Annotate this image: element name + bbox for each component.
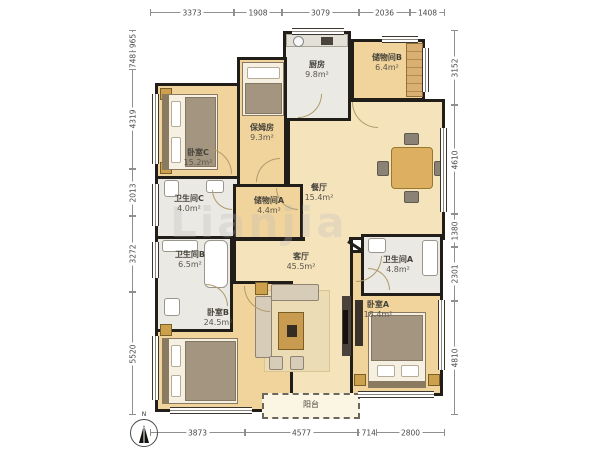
- dimension-value: 4610: [450, 148, 459, 171]
- room-name: 卧室B: [192, 308, 244, 318]
- dimension-value: 3873: [186, 428, 209, 437]
- room-name: 卧室A: [352, 300, 404, 310]
- dimension-top-3: 3079: [282, 7, 359, 18]
- dimension-value: 3079: [309, 8, 332, 17]
- pillow-icon: [247, 67, 280, 79]
- room-label-bathroom-c: 卫生间C 4.0m²: [163, 194, 215, 214]
- room-name: 客厅: [276, 252, 326, 262]
- room-name: 卫生间C: [163, 194, 215, 204]
- room-name: 卧室C: [172, 148, 224, 158]
- window-icon: [438, 300, 445, 370]
- bed-headboard: [163, 95, 169, 169]
- room-area: 45.5m²: [276, 262, 326, 272]
- room-name: 储物间B: [361, 53, 413, 63]
- dining-table-icon: [391, 147, 433, 189]
- room-area: 18.4m²: [352, 310, 404, 320]
- dimension-value: 5520: [128, 342, 137, 365]
- chair-icon: [377, 161, 389, 176]
- room-label-nanny: 保姆房 9.3m²: [239, 123, 285, 143]
- blanket: [245, 83, 282, 114]
- dimension-bottom-4: 2800: [376, 427, 445, 438]
- dimension-left-3: 4319: [127, 69, 138, 169]
- room-label-living: 客厅 45.5m²: [276, 252, 326, 272]
- toilet-icon: [368, 238, 386, 253]
- dimension-right-4: 2301: [449, 247, 460, 301]
- dimension-value: 3373: [180, 8, 203, 17]
- window-icon: [152, 184, 159, 226]
- pillow-icon: [171, 375, 181, 397]
- dimension-top-4: 2036: [359, 7, 410, 18]
- pillow-icon: [171, 345, 181, 367]
- floor-plan: 卧室C 15.2m² 保姆房 9.3m² 厨房 9.8m² 储物间B 6.4m²…: [0, 0, 600, 450]
- dimension-value: 2800: [399, 428, 422, 437]
- window-icon: [440, 128, 447, 212]
- dimension-value: 4319: [128, 107, 137, 130]
- dimension-left-6: 5520: [127, 292, 138, 415]
- room-name: 储物间A: [244, 196, 294, 206]
- dimension-value: 2013: [128, 181, 137, 204]
- toilet-icon: [164, 298, 180, 316]
- tv-icon: [343, 310, 348, 344]
- window-icon: [382, 36, 418, 43]
- room-label-balcony: 阳台: [286, 400, 336, 410]
- window-icon: [152, 336, 159, 400]
- kitchen-counter-icon: [286, 34, 348, 47]
- bed-headboard: [163, 339, 169, 403]
- room-area: 15.2m²: [172, 158, 224, 168]
- room-area: 4.4m²: [244, 206, 294, 216]
- pillow-icon: [171, 101, 181, 127]
- dimension-left-2: 748: [127, 52, 138, 69]
- room-name: 餐厅: [294, 183, 344, 193]
- dimension-top-2: 1908: [234, 7, 282, 18]
- dimension-value: 4810: [450, 346, 459, 369]
- room-area: 24.5m²: [192, 318, 244, 328]
- chair-icon: [404, 133, 419, 145]
- table-decor: [287, 325, 297, 337]
- dimension-right-5: 4810: [449, 301, 460, 415]
- window-icon: [152, 242, 159, 278]
- compass-north-label: N: [142, 411, 147, 418]
- dimension-right-2: 4610: [449, 105, 460, 214]
- window-icon: [152, 94, 159, 164]
- nightstand-icon: [428, 374, 440, 386]
- dimension-top-1: 3373: [150, 7, 234, 18]
- room-area: 4.0m²: [163, 204, 215, 214]
- dimension-value: 748: [128, 51, 137, 69]
- window-icon: [358, 391, 434, 398]
- dimension-left-4: 2013: [127, 169, 138, 216]
- room-label-bedroom-b: 卧室B 24.5m²: [192, 308, 244, 328]
- room-name: 卫生间B: [164, 250, 216, 260]
- dimension-value: 1408: [416, 8, 439, 17]
- nightstand-icon: [160, 324, 172, 336]
- dimension-bottom-1: 3873: [150, 427, 245, 438]
- dimension-bottom-3: 714: [358, 427, 376, 438]
- dimension-value: 2301: [450, 262, 459, 285]
- pillow-icon: [401, 365, 419, 377]
- stool-icon: [269, 356, 283, 370]
- room-label-bathroom-a: 卫生间A 4.8m²: [372, 255, 424, 275]
- dimension-left-1: 965: [127, 30, 138, 52]
- room-label-bedroom-a: 卧室A 18.4m²: [352, 300, 404, 320]
- sofa-icon: [271, 284, 319, 301]
- room-label-bathroom-b: 卫生间B 6.5m²: [164, 250, 216, 270]
- dimension-value: 3152: [450, 56, 459, 79]
- blanket: [371, 315, 423, 361]
- dimension-top-5: 1408: [410, 7, 445, 18]
- north-arrow-slit: [144, 427, 145, 443]
- room-area: 6.5m²: [164, 260, 216, 270]
- stove-icon: [321, 37, 333, 45]
- dimension-right-1: 3152: [449, 30, 460, 105]
- window-icon: [292, 28, 344, 35]
- sink-icon: [293, 36, 304, 47]
- room-area: 9.3m²: [239, 133, 285, 143]
- window-icon: [422, 48, 429, 92]
- room-area: 15.4m²: [294, 193, 344, 203]
- pillow-icon: [377, 365, 395, 377]
- room-label-kitchen: 厨房 9.8m²: [293, 60, 341, 80]
- room-name: 卫生间A: [372, 255, 424, 265]
- dimension-value: 965: [128, 32, 137, 50]
- dimension-left-5: 3272: [127, 216, 138, 292]
- dimension-value: 2036: [373, 8, 396, 17]
- dimension-value: 3272: [128, 242, 137, 265]
- sink-icon: [422, 240, 438, 276]
- bed-icon: [242, 62, 284, 116]
- bed-icon: [368, 312, 426, 388]
- blanket: [185, 341, 236, 401]
- room-area: 6.4m²: [361, 63, 413, 73]
- room-name: 保姆房: [239, 123, 285, 133]
- bed-icon: [162, 338, 238, 404]
- nightstand-icon: [354, 374, 366, 386]
- room-label-bedroom-c: 卧室C 15.2m²: [172, 148, 224, 168]
- bed-headboard: [369, 381, 425, 387]
- room-name: 阳台: [286, 400, 336, 410]
- room-label-storage-a: 储物间A 4.4m²: [244, 196, 294, 216]
- dimension-bottom-2: 4577: [245, 427, 358, 438]
- room-area: 4.8m²: [372, 265, 424, 275]
- dimension-value: 4577: [290, 428, 313, 437]
- room-name: 厨房: [293, 60, 341, 70]
- dimension-right-3: 1380: [449, 214, 460, 247]
- tv-console-icon: [342, 296, 351, 356]
- chair-icon: [404, 191, 419, 203]
- stool-icon: [290, 356, 304, 370]
- dimension-value: 1380: [450, 219, 459, 242]
- coffee-table-icon: [278, 312, 304, 350]
- window-icon: [170, 407, 252, 414]
- room-area: 9.8m²: [293, 70, 341, 80]
- compass: N: [130, 419, 158, 447]
- dimension-value: 1908: [246, 8, 269, 17]
- room-label-dining: 餐厅 15.4m²: [294, 183, 344, 203]
- room-label-storage-b: 储物间B 6.4m²: [361, 53, 413, 73]
